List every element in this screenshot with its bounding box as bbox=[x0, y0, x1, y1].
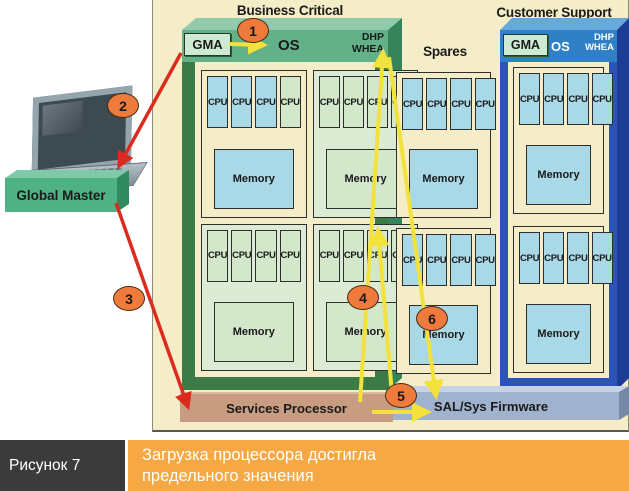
cpu-row: CPUCPUCPUCPU bbox=[402, 234, 485, 286]
cpu-cell: CPU bbox=[450, 234, 471, 286]
dhp-label: DHP bbox=[594, 32, 614, 43]
step-badge-4: 4 bbox=[347, 285, 379, 310]
spares-title: Spares bbox=[400, 44, 490, 59]
cpu-cell: CPU bbox=[231, 76, 252, 128]
step-badge-5: 5 bbox=[385, 383, 417, 408]
cell-group: CPUCPUCPUCPUMemory bbox=[513, 226, 604, 373]
cpu-cell: CPU bbox=[367, 230, 388, 282]
business-critical-title: Business Critical bbox=[195, 3, 385, 18]
gma-cell-customer-support: GMA bbox=[503, 34, 548, 56]
cpu-row: CPUCPUCPUCPU bbox=[207, 76, 301, 128]
sal-firmware-bevel-right bbox=[619, 386, 629, 420]
cpu-cell: CPU bbox=[519, 73, 540, 125]
cpu-cell: CPU bbox=[592, 232, 613, 284]
cpu-cell: CPU bbox=[319, 76, 340, 128]
cpu-cell: CPU bbox=[426, 234, 447, 286]
cpu-cell: CPU bbox=[475, 78, 496, 130]
cpu-cell: CPU bbox=[319, 230, 340, 282]
figure-number-label: Рисунок 7 bbox=[0, 440, 125, 491]
step-badge-1: 1 bbox=[237, 18, 269, 43]
cpu-row: CPUCPUCPUCPU bbox=[207, 230, 301, 282]
whea-label: WHEA bbox=[585, 42, 614, 53]
cpu-cell: CPU bbox=[343, 76, 364, 128]
cpu-cell: CPU bbox=[231, 230, 252, 282]
dhp-whea-label-business-critical: DHP WHEA bbox=[328, 32, 384, 55]
customer-support-body: CPUCPUCPUCPUMemory CPUCPUCPUCPUMemory bbox=[500, 62, 617, 390]
whea-label: WHEA bbox=[352, 43, 384, 55]
customer-support-inner: CPUCPUCPUCPUMemory CPUCPUCPUCPUMemory bbox=[508, 62, 609, 378]
cpu-cell: CPU bbox=[255, 76, 276, 128]
dhp-whea-label-customer-support: DHP WHEA bbox=[576, 33, 614, 54]
business-critical-body: CPUCPUCPUCPUMemory CPUCPUCPUCPUMemory CP… bbox=[182, 62, 388, 390]
cpu-cell: CPU bbox=[519, 232, 540, 284]
global-master-bevel-top bbox=[5, 170, 129, 178]
cpu-cell: CPU bbox=[343, 230, 364, 282]
memory-cell: Memory bbox=[409, 149, 478, 209]
cpu-cell: CPU bbox=[426, 78, 447, 130]
memory-cell: Memory bbox=[526, 145, 591, 205]
cell-group: CPUCPUCPUCPUMemory bbox=[201, 70, 307, 218]
caption-line-1: Загрузка процессора достигла bbox=[142, 445, 629, 466]
spares-section: CPUCPUCPUCPUMemory CPUCPUCPUCPUMemory bbox=[396, 72, 491, 374]
cell-group: CPUCPUCPUCPUMemory bbox=[396, 72, 491, 218]
cpu-cell: CPU bbox=[450, 78, 471, 130]
business-critical-inner: CPUCPUCPUCPUMemory CPUCPUCPUCPUMemory CP… bbox=[195, 62, 375, 377]
memory-cell: Memory bbox=[214, 302, 294, 362]
cpu-cell: CPU bbox=[402, 78, 423, 130]
step-badge-3: 3 bbox=[113, 286, 145, 311]
cpu-cell: CPU bbox=[402, 234, 423, 286]
cpu-row: CPUCPUCPUCPU bbox=[519, 232, 598, 284]
figure-diagram: Business Critical Customer Support Spare… bbox=[0, 0, 629, 491]
customer-support-bevel-top bbox=[500, 18, 629, 30]
cpu-cell: CPU bbox=[475, 234, 496, 286]
customer-support-title: Customer Support bbox=[480, 5, 628, 20]
cpu-row: CPUCPUCPUCPU bbox=[519, 73, 598, 125]
cpu-cell: CPU bbox=[567, 73, 588, 125]
step-badge-6: 6 bbox=[416, 306, 448, 331]
gma-cell-business-critical: GMA bbox=[184, 33, 231, 56]
cpu-cell: CPU bbox=[207, 76, 228, 128]
cpu-cell: CPU bbox=[207, 230, 228, 282]
services-processor-bar: Services Processor bbox=[180, 392, 393, 422]
cell-group: CPUCPUCPUCPUMemory bbox=[396, 228, 491, 374]
sal-firmware-bar: SAL/Sys Firmware bbox=[393, 392, 619, 420]
customer-support-bevel-right bbox=[617, 18, 629, 390]
cpu-cell: CPU bbox=[543, 232, 564, 284]
cpu-cell: CPU bbox=[567, 232, 588, 284]
dhp-label: DHP bbox=[362, 31, 384, 43]
caption-line-2: предельного значения bbox=[142, 466, 629, 487]
os-label-business-critical: OS bbox=[278, 37, 300, 54]
memory-cell: Memory bbox=[214, 149, 294, 209]
cpu-cell: CPU bbox=[543, 73, 564, 125]
cell-group: CPUCPUCPUCPUMemory bbox=[201, 224, 307, 372]
memory-cell: Memory bbox=[326, 149, 406, 209]
cell-group: CPUCPUCPUCPUMemory bbox=[513, 67, 604, 214]
cpu-cell: CPU bbox=[280, 230, 301, 282]
figure-caption: Загрузка процессора достигла предельного… bbox=[128, 440, 629, 491]
cpu-row: CPUCPUCPUCPU bbox=[402, 78, 485, 130]
global-master-box: Global Master bbox=[5, 178, 117, 212]
cpu-cell: CPU bbox=[592, 73, 613, 125]
os-label-customer-support: OS bbox=[551, 39, 570, 54]
memory-cell: Memory bbox=[326, 302, 406, 362]
cpu-cell: CPU bbox=[255, 230, 276, 282]
business-critical-bevel-top bbox=[182, 18, 402, 30]
cpu-cell: CPU bbox=[367, 76, 388, 128]
cpu-cell: CPU bbox=[280, 76, 301, 128]
step-badge-2: 2 bbox=[107, 93, 139, 118]
memory-cell: Memory bbox=[526, 304, 591, 364]
